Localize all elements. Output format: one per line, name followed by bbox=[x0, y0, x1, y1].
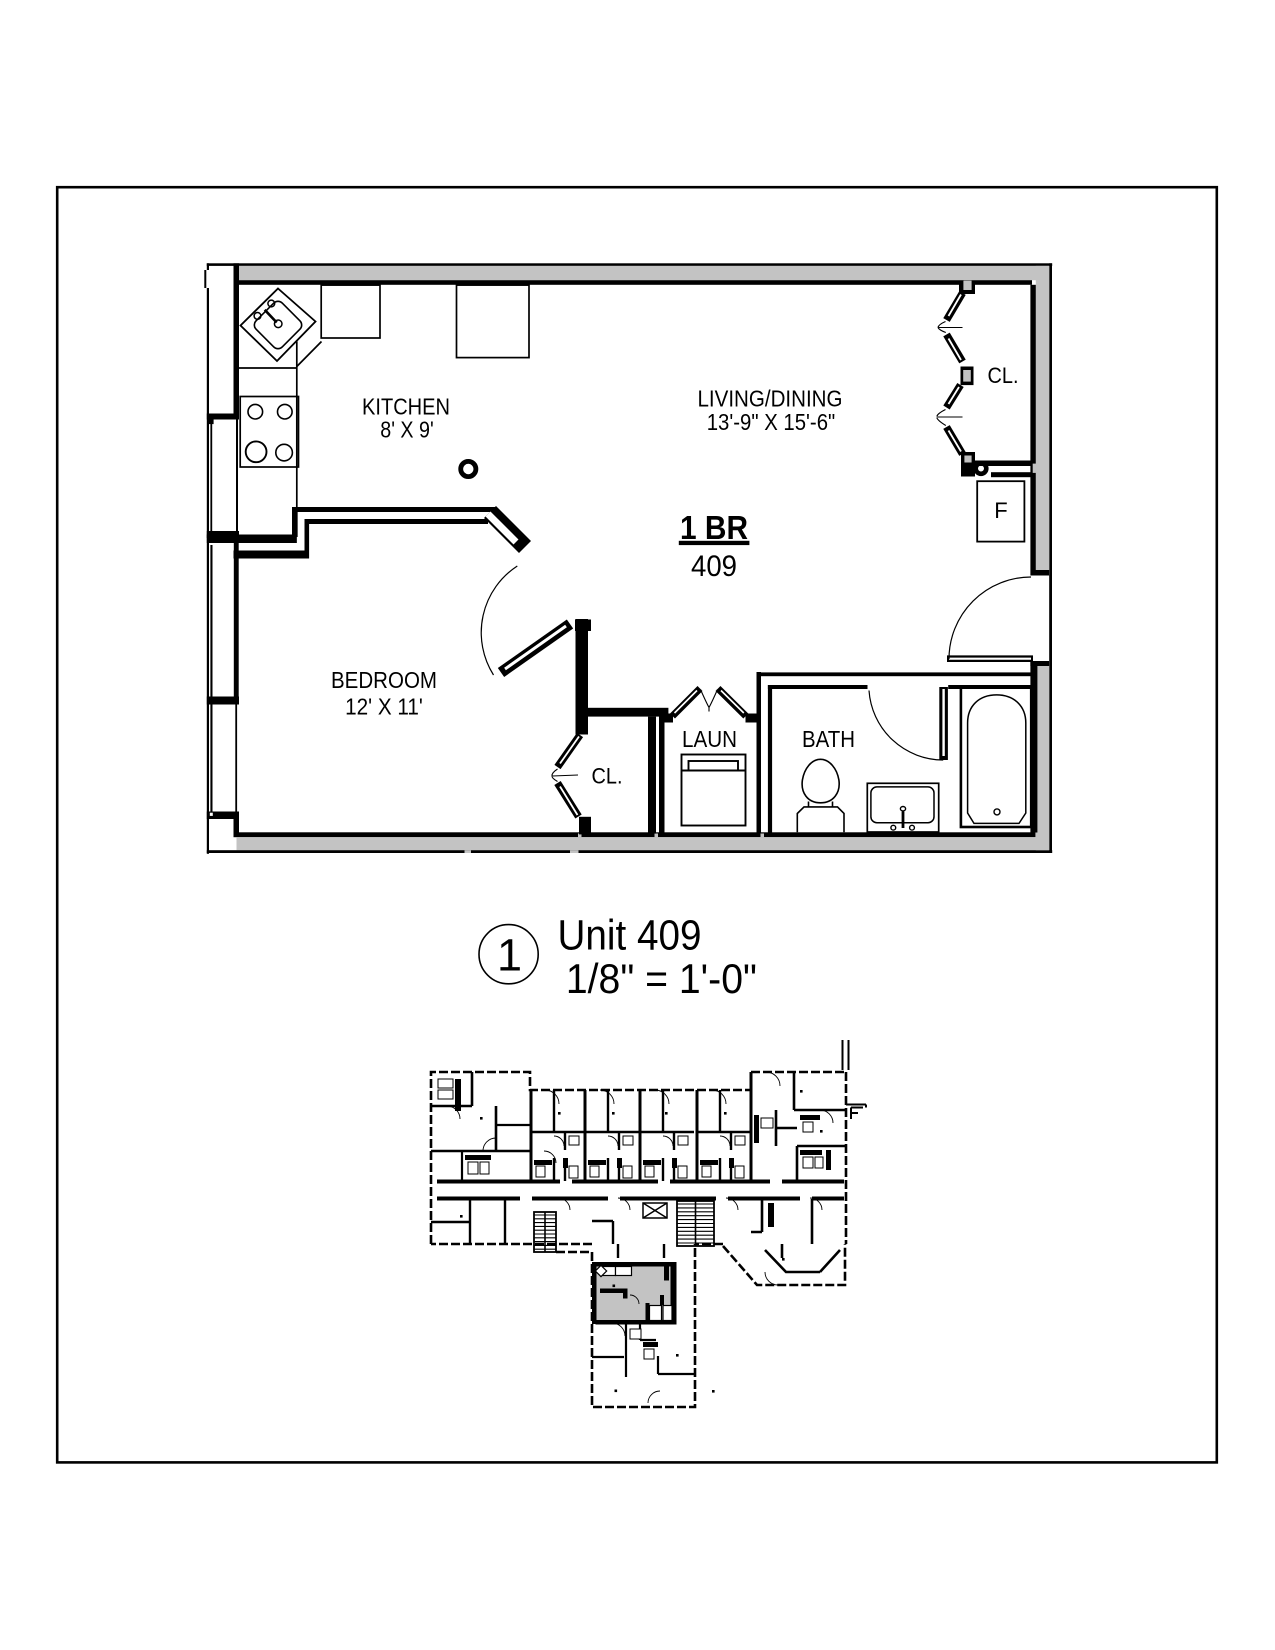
svg-text:1 BR: 1 BR bbox=[680, 509, 748, 546]
svg-text:1/8" = 1'-0": 1/8" = 1'-0" bbox=[566, 955, 757, 1002]
svg-text:LAUN: LAUN bbox=[682, 726, 737, 752]
svg-text:LIVING/DINING: LIVING/DINING bbox=[698, 386, 843, 412]
svg-text:CL.: CL. bbox=[592, 764, 623, 789]
svg-text:Unit 409: Unit 409 bbox=[558, 911, 702, 959]
svg-text:1: 1 bbox=[497, 930, 522, 981]
svg-text:BATH: BATH bbox=[802, 726, 855, 752]
svg-text:F: F bbox=[994, 498, 1007, 523]
svg-text:BEDROOM: BEDROOM bbox=[331, 667, 437, 693]
svg-text:13'-9" X 15'-6": 13'-9" X 15'-6" bbox=[707, 409, 836, 435]
svg-text:409: 409 bbox=[691, 550, 737, 583]
svg-text:CL.: CL. bbox=[988, 363, 1019, 388]
svg-text:12' X 11': 12' X 11' bbox=[345, 694, 423, 720]
svg-text:8' X 9': 8' X 9' bbox=[380, 417, 434, 443]
